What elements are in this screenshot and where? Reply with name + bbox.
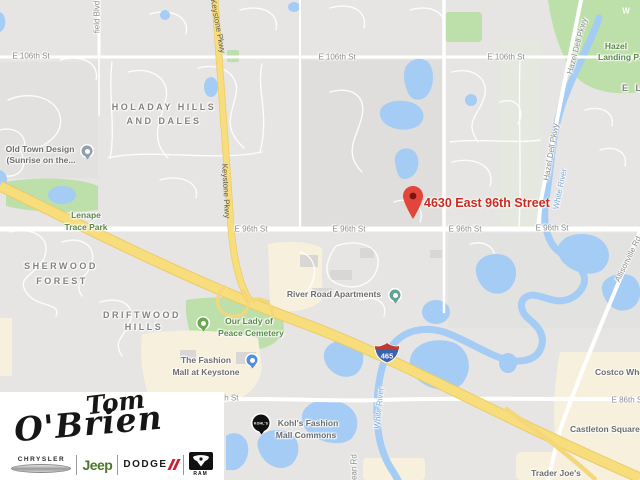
park-label: Trace Park bbox=[64, 222, 107, 232]
road-label: E 106th St bbox=[318, 53, 355, 62]
neighborhood-label: DRIFTWOOD bbox=[103, 310, 181, 320]
ram-head-icon bbox=[189, 452, 213, 470]
neighborhood-label: AND DALES bbox=[126, 116, 201, 126]
poi-label: Costco Wholesale bbox=[595, 367, 640, 377]
poi-label: Mall Commons bbox=[276, 430, 336, 440]
divider bbox=[76, 455, 77, 475]
poi-label: Mall at Keystone bbox=[172, 367, 239, 377]
brand-logos-row: CHRYSLER Jeep DODGE RAM bbox=[0, 452, 224, 477]
dodge-wordmark: DODGE bbox=[123, 459, 167, 470]
kohls-badge-icon[interactable]: KOHL'S bbox=[253, 415, 270, 432]
poi-label: River Road Apartments bbox=[287, 289, 381, 299]
logo-script-obrien: O'Brien bbox=[13, 398, 164, 450]
poi-label: Old Town Design bbox=[6, 144, 75, 154]
neighborhood-label: HILLS bbox=[125, 322, 164, 332]
neighborhood-label: HOLADAY HILLS bbox=[112, 102, 217, 112]
interstate-465-shield-icon: 465 bbox=[374, 343, 400, 368]
poi-label: (Sunrise on the... bbox=[7, 155, 76, 165]
park-label: Peace Cemetery bbox=[218, 328, 284, 338]
road-label: E 96th St bbox=[449, 225, 482, 234]
park-label: Hazel bbox=[605, 41, 627, 51]
park-label: Lenape bbox=[71, 210, 101, 220]
poi-label: Trader Joe's bbox=[531, 468, 581, 478]
road-label: E 106th St bbox=[487, 53, 524, 62]
divider bbox=[183, 455, 184, 475]
mall-pin-icon[interactable] bbox=[247, 355, 258, 366]
park-label: Our Lady of bbox=[225, 316, 273, 326]
road-label: E 96th St bbox=[235, 225, 268, 234]
dealer-logo: Tom O'Brien CHRYSLER Jeep DODGE bbox=[0, 392, 224, 480]
cemetery-pin-icon[interactable] bbox=[198, 318, 209, 329]
road-label: E 106th St bbox=[12, 52, 49, 61]
road-label: E 96th St bbox=[536, 224, 569, 233]
poi-label: Castleton Square bbox=[570, 424, 640, 434]
apartments-pin-icon[interactable] bbox=[390, 290, 401, 301]
destination-address-label: 4630 East 96th Street bbox=[424, 196, 550, 210]
ram-logo: RAM bbox=[189, 452, 213, 477]
chrysler-logo: CHRYSLER bbox=[11, 456, 71, 473]
divider bbox=[117, 455, 118, 475]
water-label: W bbox=[622, 7, 630, 16]
map-screen: E 106th St E 106th St E 106th St E 96th … bbox=[0, 0, 640, 480]
ram-wordmark: RAM bbox=[193, 471, 207, 477]
neighborhood-label: E L L bbox=[622, 83, 640, 93]
park-label: Landing Park bbox=[598, 52, 640, 62]
road-label: E 86th St bbox=[612, 396, 640, 405]
chrysler-wordmark: CHRYSLER bbox=[18, 456, 66, 463]
neighborhood-label: SHERWOOD bbox=[24, 261, 98, 271]
poi-label: The Fashion bbox=[181, 355, 231, 365]
svg-text:465: 465 bbox=[381, 352, 394, 361]
dodge-logo: DODGE bbox=[123, 459, 177, 470]
jeep-logo: Jeep bbox=[82, 457, 112, 473]
place-pin-icon[interactable] bbox=[82, 146, 93, 157]
kohls-badge-text: KOHL'S bbox=[254, 421, 268, 425]
poi-label: Kohl's Fashion bbox=[278, 418, 339, 428]
neighborhood-label: FOREST bbox=[36, 276, 88, 286]
destination-marker-icon[interactable] bbox=[403, 186, 423, 224]
chrysler-wing-icon bbox=[11, 464, 71, 473]
road-label: E 96th St bbox=[333, 225, 366, 234]
road-label: Dean Rd bbox=[350, 454, 359, 480]
road-label: field Blvd bbox=[93, 1, 102, 33]
